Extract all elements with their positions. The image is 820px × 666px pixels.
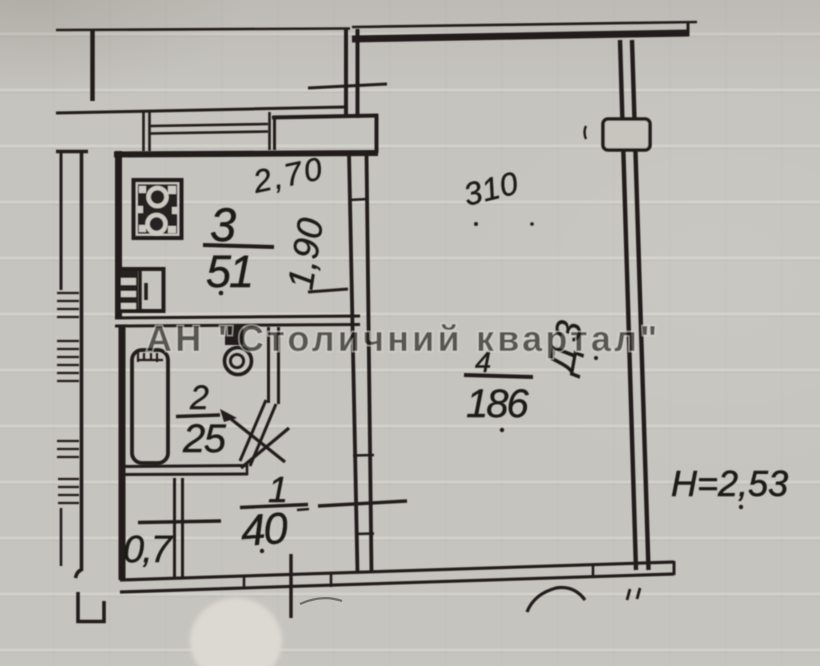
svg-text:3: 3	[210, 198, 236, 251]
svg-text:40: 40	[239, 504, 290, 556]
svg-text:51: 51	[206, 246, 252, 297]
svg-text:186: 186	[466, 382, 529, 426]
svg-text:310: 310	[460, 165, 522, 213]
svg-text:АН "Столичний квартал": АН "Столичний квартал"	[146, 318, 660, 359]
svg-text:25: 25	[182, 417, 227, 461]
svg-text:0,7: 0,7	[123, 529, 174, 571]
svg-text:1,90: 1,90	[279, 215, 331, 293]
svg-text:2: 2	[189, 379, 209, 417]
svg-text:2,70: 2,70	[249, 150, 327, 200]
svg-text:Н=2,53: Н=2,53	[671, 463, 788, 504]
